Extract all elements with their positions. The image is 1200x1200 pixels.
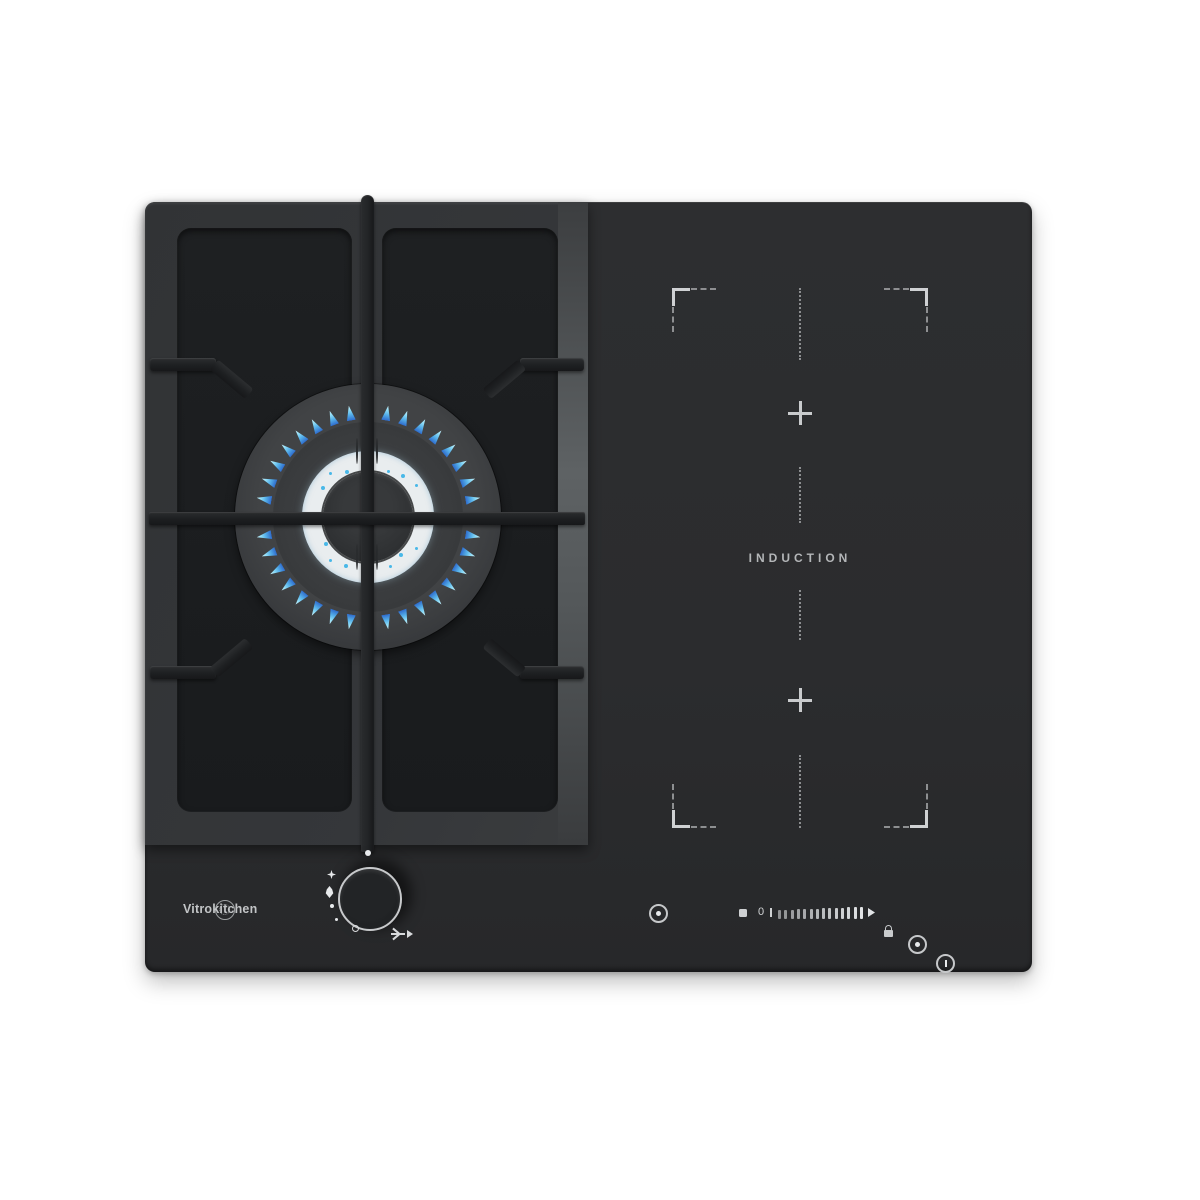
- flex-zone-divider-dash: [799, 590, 801, 640]
- gas-module: [145, 202, 588, 845]
- cap-tab-icon: [376, 438, 378, 464]
- zone-center-cross-icon: [788, 688, 812, 712]
- slider-bar: [835, 908, 838, 919]
- slider-bar: [854, 907, 857, 919]
- inner-flame-speck: [401, 474, 405, 478]
- flex-zone-bracket-br: [878, 778, 928, 828]
- zone-center-cross-icon: [788, 401, 812, 425]
- brand-logo-text: Vitrokitchen: [183, 902, 283, 916]
- cap-tab-icon: [356, 438, 358, 464]
- slider-zero-label: 0: [758, 906, 764, 918]
- gas-control-knob[interactable]: [338, 867, 402, 931]
- pause-button[interactable]: [936, 954, 955, 973]
- inner-flame-speck: [387, 470, 390, 473]
- inner-flame-speck: [399, 553, 403, 557]
- power-button[interactable]: [649, 904, 668, 923]
- slider-zero-tick: [770, 908, 772, 917]
- inner-flame-speck: [321, 486, 325, 490]
- inner-flame-speck: [344, 564, 348, 568]
- timer-button[interactable]: [908, 935, 927, 954]
- flex-zone-bracket-tr: [878, 288, 928, 338]
- flex-zone-bracket-bl: [672, 778, 722, 828]
- flex-zone-divider-dash: [799, 755, 801, 828]
- knob-min-flame-icon: [335, 918, 338, 921]
- slider-bar: [816, 909, 819, 920]
- slider-bar: [797, 909, 800, 919]
- brand-logo: Vitrokitchen: [183, 902, 283, 922]
- inner-flame-speck: [415, 547, 418, 550]
- slider-bar: [803, 909, 806, 919]
- flex-zone-divider-dash: [799, 288, 801, 360]
- inner-flame-speck: [389, 565, 392, 568]
- slider-bar: [791, 910, 794, 920]
- pan-support-horizontal-bar: [149, 512, 585, 525]
- cap-tab-icon: [376, 544, 378, 570]
- inner-flame-speck: [329, 559, 332, 562]
- slider-bar: [810, 909, 813, 919]
- inner-flame-speck: [324, 542, 328, 546]
- slider-bar: [822, 908, 825, 919]
- knob-spark-icon: [327, 870, 336, 879]
- slider-bar: [841, 908, 844, 920]
- slider-bar: [828, 908, 831, 919]
- knob-off-dot-icon: [365, 850, 371, 856]
- pan-support-finger-se: [520, 666, 584, 679]
- inner-flame-speck: [345, 470, 349, 474]
- cap-tab-icon: [356, 544, 358, 570]
- slider-arrow-icon: [868, 908, 875, 917]
- inner-flame-speck: [329, 472, 332, 475]
- knob-turn-arrow-icon: [391, 929, 409, 939]
- knob-large-flame-icon: [325, 886, 334, 898]
- lock-icon[interactable]: [884, 930, 893, 937]
- slider-bar: [784, 910, 787, 919]
- cooktop: INDUCTION 0 Vitrokitchen: [145, 202, 1032, 972]
- pan-support-finger-sw: [150, 666, 216, 679]
- flex-zone-divider-dash: [799, 467, 801, 523]
- product-photo: INDUCTION 0 Vitrokitchen: [0, 0, 1200, 1200]
- knob-position-ring-icon: [352, 925, 359, 932]
- slider-bar: [778, 910, 781, 919]
- pan-support-finger-ne: [520, 358, 584, 371]
- stop-button[interactable]: [739, 909, 747, 917]
- inner-flame-speck: [415, 484, 418, 487]
- flex-zone-bracket-tl: [672, 288, 722, 338]
- power-slider[interactable]: [778, 905, 866, 919]
- slider-bar: [847, 907, 850, 919]
- induction-label: INDUCTION: [720, 551, 880, 565]
- pan-support-finger-nw: [150, 358, 216, 371]
- knob-small-flame-icon: [330, 904, 334, 908]
- slider-bar: [860, 907, 863, 919]
